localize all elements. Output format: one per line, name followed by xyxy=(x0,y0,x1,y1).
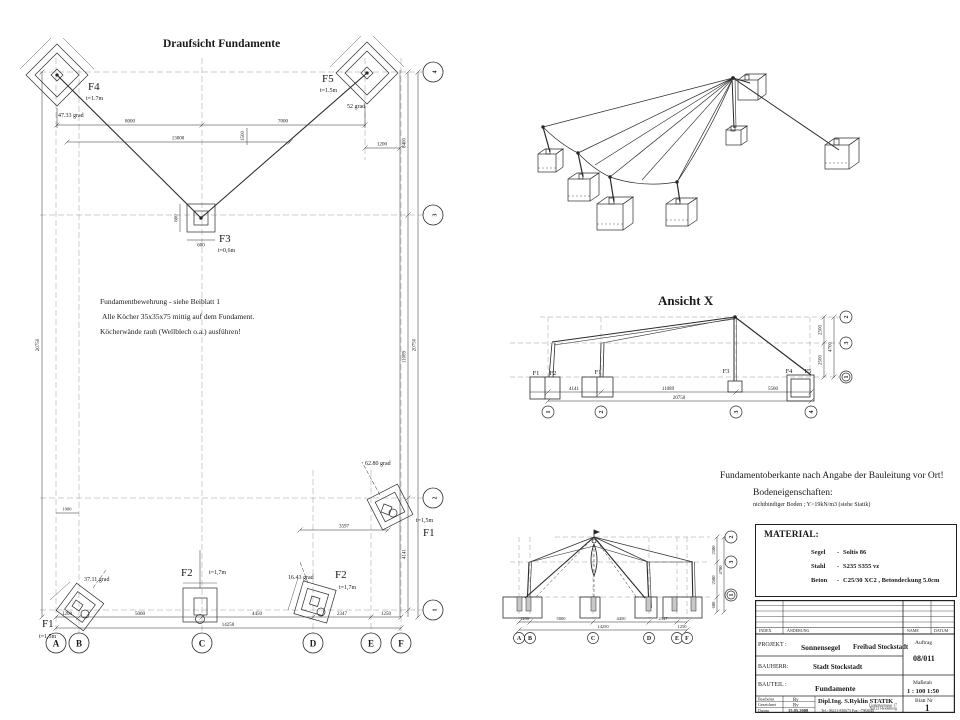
angle-f5: 52 grad xyxy=(347,104,365,110)
material-sep: - xyxy=(833,563,843,570)
foundation-depth-f5: t=1.5m xyxy=(320,88,338,94)
tb-bauteil-label: BAUTEIL : xyxy=(758,682,787,688)
tb-projekt-ort: Freibad Stockstadt xyxy=(853,644,909,651)
fe-structure xyxy=(503,530,702,618)
fe-dim-5000: 5000 xyxy=(557,616,567,621)
fe-dim-4450: 4450 xyxy=(617,616,627,621)
dim-bot-1200: 1200 xyxy=(62,612,73,617)
ansicht-x-title: Ansicht X xyxy=(658,293,714,308)
material-row-beton: Beton-C25/30 XC2 , Betondeckung 5.0cm xyxy=(811,577,939,584)
plan-note-2: Alle Köcher 35x35x75 mittig auf dem Fund… xyxy=(102,312,254,321)
foundation-label-f1-right: F1 xyxy=(423,527,435,539)
foundation-label-f4: F4 xyxy=(88,81,100,93)
fe-dim-v4700: 4700 xyxy=(718,565,723,575)
dim-f3-height: 600 xyxy=(197,244,205,249)
fe-dim-1250: 1250 xyxy=(678,624,688,629)
axis-row-2: 2 xyxy=(433,497,439,500)
dim-left-20750: 20750 xyxy=(36,338,41,351)
ax-dim-v2500a: 2500 xyxy=(819,325,824,336)
axis-row-3: 3 xyxy=(433,214,439,217)
fe-dim-v2500b: 2500 xyxy=(711,575,716,585)
fe-dim-v2500a: 2500 xyxy=(711,545,716,555)
iso-masts-cables xyxy=(542,77,839,202)
tb-datum-label: Datum xyxy=(758,708,770,713)
dim-top-1200: 1200 xyxy=(377,143,388,148)
fe-level-2: 2 xyxy=(729,536,735,539)
foundation-label-f2-left: F2 xyxy=(181,567,193,579)
foundation-depth-f1-right: t=1,5m xyxy=(416,518,434,524)
fe-axis-c: C xyxy=(591,636,595,642)
fe-level-3: 3 xyxy=(729,561,735,564)
fe-level-1: 1 xyxy=(729,594,735,597)
material-title: MATERIAL: xyxy=(764,530,819,540)
plan-dimension-lines xyxy=(40,70,421,631)
ax-dim-v2500b: 2500 xyxy=(819,355,824,366)
fe-axis-a: A xyxy=(517,636,522,642)
material-sep: - xyxy=(833,549,843,556)
dim-bot-5000: 5000 xyxy=(135,612,146,617)
angle-f4: 47.33 grad xyxy=(58,113,84,119)
angle-f1-left: 37.11 grad xyxy=(84,577,109,583)
dim-right-20750: 20750 xyxy=(413,338,418,351)
axis-col-f: F xyxy=(398,639,404,649)
tb-header-datum: DATUM xyxy=(934,628,949,633)
dim-top-13000: 13000 xyxy=(172,137,185,142)
ax-level-3: 3 xyxy=(844,342,850,345)
dim-bot-1250: 1250 xyxy=(381,612,392,617)
ax-label-f1b: F1 xyxy=(595,369,602,376)
ax-label-f5: F5 xyxy=(805,368,812,375)
fe-dim-14250: 14250 xyxy=(597,624,609,629)
material-key: Segel xyxy=(811,549,833,556)
fe-dashed xyxy=(505,537,710,618)
ax-axis-2: 2 xyxy=(599,411,605,414)
site-note-fundamentoberkante: Fundamentoberkante nach Angabe der Baule… xyxy=(720,471,944,481)
fe-circles xyxy=(514,531,738,644)
dim-right-8400: 8400 xyxy=(403,138,408,149)
ax-label-f3: F3 xyxy=(723,368,730,375)
dim-top-7000: 7000 xyxy=(278,120,289,125)
dim-right-4141: 4141 xyxy=(403,549,408,560)
dim-top-8000: 8000 xyxy=(125,120,136,125)
tb-bauherr-label: BAUHERR: xyxy=(758,664,789,670)
ax-label-f1: F1 xyxy=(533,370,540,377)
tb-massstab-label: Maßstab xyxy=(913,679,932,686)
tb-bearbeitet-label: Bearbeitet xyxy=(758,697,775,702)
fe-axis-f: F xyxy=(685,636,689,642)
dim-bot-2347: 2347 xyxy=(337,612,348,617)
ax-level-1: 1 xyxy=(844,376,850,379)
axis-col-e: E xyxy=(368,639,374,649)
ax-axis-4: 4 xyxy=(809,411,815,414)
foundation-label-f2-right: F2 xyxy=(335,569,347,581)
plan-texts: Draufsicht Fundamente F4 t=1.7m 47.33 gr… xyxy=(36,38,439,649)
dim-bot-4450: 4450 xyxy=(252,612,263,617)
dim-right-11089: 11089 xyxy=(403,350,408,363)
foundation-label-f5: F5 xyxy=(322,73,334,85)
ax-texts: F1 F2 F1 F3 F4 F5 4141 11089 5500 20750 … xyxy=(533,316,850,414)
plan-axis-circles xyxy=(46,62,443,653)
tb-tel: Tel.: 06221-830673 Fax: -7963048 xyxy=(821,709,874,713)
tb-auftrag-label: Auftrag xyxy=(915,639,932,646)
angle-f1-right: 62.80 grad xyxy=(365,461,391,467)
angle-f2-right: 16.43 grad xyxy=(288,575,314,581)
tb-projekt-label: PROJEKT : xyxy=(758,642,787,648)
fe-axis-b: B xyxy=(528,636,532,642)
material-value: S235 S355 vz xyxy=(843,563,879,570)
axis-col-d: D xyxy=(310,639,317,649)
foundation-label-f3: F3 xyxy=(219,233,231,245)
iso-cubes xyxy=(538,74,859,230)
ax-label-f4: F4 xyxy=(786,368,794,375)
ax-axis-3: 3 xyxy=(734,411,740,414)
dim-left-1900: 1900 xyxy=(63,507,73,512)
tb-header-aenderung: ÄNDERUNG xyxy=(787,628,810,633)
tb-gezeichnet-label: Gezeichnet xyxy=(758,702,777,707)
ax-dim-v4700: 4700 xyxy=(829,342,834,353)
material-key: Stahl xyxy=(811,563,833,570)
axis-col-a: A xyxy=(53,639,60,649)
ansicht-x-drawing: Ansicht X F1 F2 F1 F3 F4 xyxy=(490,285,960,435)
ax-circles xyxy=(542,311,852,418)
ax-level-2: 2 xyxy=(844,316,850,319)
drawing-sheet: Draufsicht Fundamente F4 t=1.7m 47.33 gr… xyxy=(0,0,960,720)
material-row-stahl: Stahl-S235 S355 vz xyxy=(811,563,879,570)
plan-title: Draufsicht Fundamente xyxy=(163,38,280,50)
foundation-depth-f3: t=0,6m xyxy=(218,248,236,254)
fe-axis-d: D xyxy=(647,636,652,642)
title-block: INDEX ÄNDERUNG NAME DATUM PROJEKT : Sonn… xyxy=(755,600,955,713)
fe-dim-v600: 600 xyxy=(711,601,716,609)
ax-label-f2: F2 xyxy=(550,370,557,377)
fe-axis-e: E xyxy=(675,636,679,642)
site-note-boden-detail: nichtbindiger Boden ; Y>19kN/m3 (siehe S… xyxy=(753,502,870,508)
tb-header-name: NAME xyxy=(907,628,919,633)
axis-col-c: C xyxy=(199,639,206,649)
front-elevation-drawing: 1200 5000 4450 2347 1250 14250 2500 2500… xyxy=(495,520,755,665)
tb-header-index: INDEX xyxy=(759,628,772,633)
dim-top-1500: 1500 xyxy=(241,131,246,142)
ax-dim-5500: 5500 xyxy=(768,387,779,392)
ax-axis-1: 1 xyxy=(546,411,552,414)
material-value: Soltis 86 xyxy=(843,549,866,556)
foundation-depth-f4: t=1.7m xyxy=(86,96,104,102)
tb-projekt-name: Sonnensegel xyxy=(801,643,840,652)
plan-view-drawing: Draufsicht Fundamente F4 t=1.7m 47.33 gr… xyxy=(0,0,470,700)
material-key: Beton xyxy=(811,577,833,584)
material-value: C25/30 XC2 , Betondeckung 5.0cm xyxy=(843,577,939,584)
ax-dim-4141: 4141 xyxy=(569,387,580,392)
ax-dim-20750: 20750 xyxy=(673,396,686,401)
axis-col-b: B xyxy=(76,639,82,649)
tb-massstab: 1 : 100 1:50 xyxy=(907,688,939,695)
material-sep: - xyxy=(833,577,843,584)
foundation-depth-f2-left: t=1,7m xyxy=(209,570,227,576)
axis-row-1: 1 xyxy=(433,609,439,612)
material-box: MATERIAL: Segel-Soltis 86 Stahl-S235 S35… xyxy=(755,524,957,597)
tb-texts: INDEX ÄNDERUNG NAME DATUM PROJEKT : Sonn… xyxy=(758,628,949,713)
fe-dim-1200: 1200 xyxy=(520,616,530,621)
fe-dim-2347: 2347 xyxy=(659,616,669,621)
isometric-view-drawing xyxy=(490,30,960,280)
tb-bauteil: Fundamente xyxy=(815,684,856,693)
dim-bot-14250: 14250 xyxy=(222,623,235,628)
foundation-depth-f2-right: t=1,7m xyxy=(339,585,357,591)
tb-bearbeitet: Ry xyxy=(793,698,799,703)
tb-auftrag-nr: 08/011 xyxy=(913,654,935,663)
tb-datum: 15.05.2008 xyxy=(788,708,809,713)
tb-blatt-nr: 1 xyxy=(925,703,930,713)
foundation-label-f1-left: F1 xyxy=(42,618,54,630)
ax-dim-11089: 11089 xyxy=(662,387,675,392)
axis-row-4: 4 xyxy=(433,71,439,74)
material-row-segel: Segel-Soltis 86 xyxy=(811,549,866,556)
site-note-bodeneigenschaften: Bodeneigenschaften: xyxy=(753,488,833,498)
plan-note-3: Köcherwände rauh (Wellblech o.a.) ausfüh… xyxy=(100,327,241,336)
dim-f3-width: 600 xyxy=(175,214,180,222)
tb-bauherr: Stadt Stockstadt xyxy=(813,663,863,671)
dim-3597: 3597 xyxy=(339,525,350,530)
plan-note-1: Fundamentbewehrung - siehe Beiblatt 1 xyxy=(100,297,220,306)
